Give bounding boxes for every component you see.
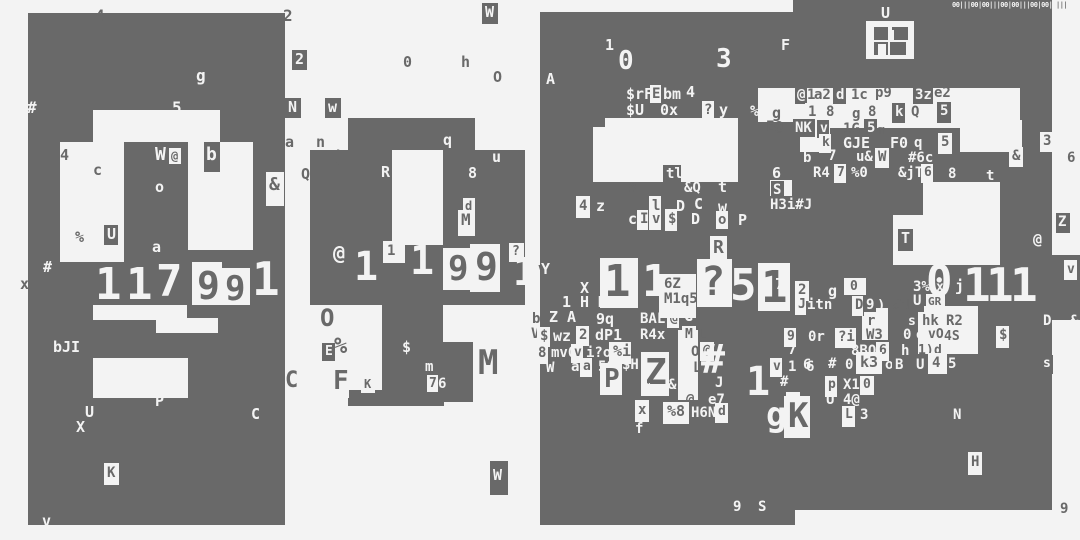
- glyph: R4x: [640, 328, 665, 342]
- glyph: F0: [890, 136, 908, 151]
- glyph: A: [546, 72, 555, 87]
- glyph: 5: [948, 357, 956, 371]
- glyph: C: [285, 370, 298, 392]
- block: [874, 27, 888, 40]
- glyph: W: [485, 5, 494, 20]
- glyph: 4: [60, 148, 69, 163]
- glyph: s: [628, 180, 637, 195]
- glyph: S: [773, 183, 781, 197]
- glyph: 4: [95, 8, 105, 24]
- glyph: %: [750, 104, 759, 119]
- glyph: #: [780, 375, 788, 389]
- glyph: W3: [866, 328, 883, 342]
- glyph: 1: [605, 38, 614, 53]
- glyph: Z A: [549, 310, 576, 325]
- glyph: 3z: [915, 88, 932, 102]
- glyph: NK: [795, 121, 812, 135]
- glyph: #: [828, 357, 836, 371]
- glyph: 1: [788, 360, 796, 374]
- glyph: 1c: [851, 88, 868, 102]
- glyph: I: [640, 212, 648, 226]
- glyph: bm: [663, 87, 681, 102]
- glyph: R: [381, 165, 390, 180]
- glyph: y: [719, 103, 728, 118]
- glyph: ): [877, 299, 885, 313]
- glyph: #:: [644, 382, 657, 393]
- glyph: 0: [403, 55, 412, 70]
- glyph: X: [76, 420, 85, 435]
- glyph: bJI: [53, 340, 80, 355]
- glyph: &: [1070, 314, 1078, 328]
- glyph: p: [828, 378, 836, 391]
- glyph: x: [20, 277, 29, 292]
- block: [888, 30, 894, 40]
- glyph: g: [196, 68, 206, 84]
- glyph: N: [288, 100, 297, 115]
- glyph: %: [334, 336, 347, 358]
- glyph: itn: [807, 298, 832, 312]
- glyph: Q: [911, 105, 919, 119]
- glyph: 0x: [660, 103, 678, 118]
- glyph: 9: [225, 272, 245, 306]
- glyph: L: [845, 408, 853, 421]
- glyph: 6: [1067, 151, 1075, 165]
- glyph: %8: [667, 404, 685, 419]
- glyph: 8: [538, 346, 546, 360]
- block: [443, 342, 473, 402]
- glyph: M: [478, 346, 498, 380]
- glyph: 3: [1043, 134, 1051, 148]
- block: [93, 110, 220, 142]
- glyph: 5: [941, 135, 949, 149]
- glyph: wz: [553, 329, 571, 344]
- glyph: k3: [860, 355, 878, 370]
- block: [188, 142, 253, 250]
- glyph: #: [701, 340, 725, 380]
- glyph: o: [155, 180, 164, 195]
- glyph: a: [285, 135, 294, 150]
- glyph: H: [971, 455, 979, 469]
- glyph: 7: [429, 377, 437, 390]
- glyph: u: [492, 150, 501, 165]
- glyph: q: [914, 136, 922, 150]
- glyph: j: [333, 150, 342, 165]
- glyph: 0: [845, 358, 853, 372]
- glyph: $H: [622, 358, 639, 372]
- glyph: 8: [468, 166, 477, 181]
- glyph: f: [635, 422, 643, 436]
- glyph: 0r: [808, 330, 825, 344]
- glyph: 2: [579, 328, 587, 342]
- glyph: k: [895, 105, 903, 119]
- glyph: 0: [863, 378, 871, 391]
- glyph: b: [206, 146, 217, 164]
- glyph: J: [798, 298, 806, 311]
- glyph: W: [878, 150, 886, 164]
- block: [923, 182, 958, 218]
- glyph: &: [1012, 149, 1020, 163]
- glyph: 4@: [843, 393, 860, 407]
- glyph: 5: [867, 121, 875, 135]
- glyph: 4: [686, 85, 695, 100]
- glyph: 1: [604, 260, 631, 304]
- glyph: 8: [948, 167, 956, 181]
- block: [593, 127, 605, 182]
- glyph: 9: [197, 267, 220, 305]
- glyph: g: [852, 107, 860, 121]
- glyph: 9: [866, 298, 874, 312]
- glyph: D: [676, 199, 685, 214]
- glyph: M: [685, 328, 693, 341]
- glyph: &: [668, 378, 676, 392]
- glyph: e2: [934, 86, 951, 100]
- glyph: $: [402, 340, 411, 355]
- glyph: P: [738, 213, 747, 228]
- glyph: 1: [410, 241, 434, 281]
- glyph: U: [85, 405, 94, 420]
- glyph: E: [652, 87, 660, 101]
- glyph: U: [881, 6, 890, 21]
- glyph: R4: [813, 166, 830, 180]
- glyph: d: [718, 405, 726, 418]
- glyph: K: [107, 466, 115, 480]
- block: [156, 318, 218, 333]
- glyph: 3: [716, 46, 732, 72]
- glyph: C: [251, 407, 260, 422]
- glyph: a2: [814, 88, 831, 102]
- glyph: @: [797, 88, 805, 102]
- glyph: 1: [387, 244, 395, 258]
- glyph: K: [788, 399, 808, 433]
- glyph: Z: [1058, 215, 1066, 229]
- block: [348, 118, 475, 150]
- glyph: Y: [541, 262, 550, 277]
- glyph: F: [781, 38, 790, 53]
- glyph: $: [999, 328, 1007, 342]
- glyph: F: [333, 368, 349, 394]
- glyph: b: [803, 151, 811, 165]
- glyph: 1: [126, 263, 153, 307]
- glyph: H3i#J: [770, 198, 812, 212]
- glyph: Q: [301, 167, 310, 182]
- glyph: %0: [851, 166, 868, 180]
- block: [878, 44, 886, 55]
- glyph: 9: [448, 252, 468, 286]
- glyph: W: [546, 361, 554, 375]
- glyph: $U: [626, 103, 644, 118]
- glyph: c: [93, 163, 102, 178]
- glyph: $: [540, 329, 548, 343]
- glyph: D: [1043, 314, 1051, 328]
- glyph: 4: [579, 199, 587, 213]
- glyph: o: [916, 328, 924, 342]
- glyph: t: [718, 180, 727, 195]
- glyph: t: [986, 169, 994, 183]
- glyph: 1: [513, 253, 536, 291]
- glyph: 3: [860, 408, 868, 422]
- glyph: U: [913, 294, 921, 308]
- glyph: 2: [295, 52, 304, 67]
- glyph: P: [604, 366, 620, 392]
- glyph: 0: [850, 280, 858, 293]
- glyph: %: [75, 230, 84, 245]
- glyph: O: [493, 70, 502, 85]
- glyph: @: [171, 150, 178, 162]
- glyph: m: [425, 360, 433, 374]
- glyph: hk: [922, 314, 939, 328]
- block: [310, 150, 392, 245]
- glyph: 6: [772, 166, 781, 181]
- glyph: 1: [95, 263, 122, 307]
- glyph: a: [152, 240, 161, 255]
- glyph: #N: [893, 298, 910, 312]
- glyph: 7: [828, 149, 836, 163]
- glyph: g: [828, 284, 837, 299]
- glyph: 7: [837, 166, 845, 179]
- glitch-art-canvas: 42g5#W20hONw4cW@bo&anjQ%Ua#x117991bJIPUX…: [0, 0, 1080, 540]
- glyph: 00|||00|00|||00|00|||00|00||0: [952, 2, 1060, 9]
- glyph: s: [1043, 357, 1051, 370]
- glyph: v: [42, 514, 51, 529]
- glyph: O: [691, 345, 699, 359]
- glyph: v: [773, 360, 781, 373]
- glyph: a: [571, 360, 579, 374]
- block: [955, 182, 1000, 265]
- glyph: #: [27, 100, 37, 116]
- glyph: z: [596, 199, 605, 214]
- glyph: T: [901, 231, 910, 246]
- glyph: M: [461, 212, 471, 228]
- block: [890, 42, 906, 55]
- glyph: #: [43, 260, 52, 275]
- glyph: 1: [354, 247, 378, 287]
- glyph: n: [316, 135, 325, 150]
- glyph: M1q5: [664, 292, 698, 306]
- glyph: 8: [826, 105, 834, 119]
- glyph: @: [333, 243, 345, 263]
- glyph: U: [826, 393, 834, 407]
- glyph: 6Z: [664, 277, 681, 291]
- glyph: 9: [1060, 502, 1068, 516]
- glyph: 5: [940, 104, 948, 118]
- glyph: 6: [924, 166, 932, 179]
- glyph: h: [461, 55, 470, 70]
- glyph: 5: [172, 100, 182, 116]
- glyph: E: [325, 345, 333, 358]
- glyph: 1: [808, 105, 816, 119]
- glyph: dP1: [595, 328, 622, 343]
- glyph: ?: [701, 262, 725, 302]
- glyph: r: [867, 314, 875, 328]
- glyph: w: [328, 100, 337, 115]
- glyph: ?: [704, 103, 712, 117]
- glyph: 4: [932, 356, 940, 370]
- glyph: q: [443, 133, 452, 148]
- glyph: 1: [1010, 262, 1038, 308]
- glyph: tl: [666, 167, 683, 181]
- glyph: S: [758, 500, 766, 514]
- glyph: B: [895, 358, 903, 372]
- glyph: u&: [856, 150, 873, 164]
- glyph: 2: [283, 8, 293, 24]
- glyph: &Q: [684, 181, 701, 195]
- glyph: v: [652, 212, 660, 226]
- glyph: x: [638, 403, 646, 417]
- glyph: vO: [928, 328, 944, 341]
- block: [93, 358, 188, 398]
- glyph: U: [107, 227, 116, 242]
- glyph: 7: [775, 277, 784, 292]
- glyph: 9: [733, 500, 741, 514]
- glyph: 4S: [944, 330, 960, 343]
- glyph: 6: [438, 377, 446, 391]
- glyph: #6c: [908, 151, 933, 165]
- glyph: n: [643, 167, 652, 182]
- block: [443, 150, 525, 245]
- glyph: d: [836, 88, 844, 102]
- glyph: 0: [618, 48, 634, 74]
- glyph: p9: [875, 86, 892, 100]
- glyph: W: [155, 146, 166, 164]
- glyph: c: [628, 212, 637, 227]
- block: [892, 27, 908, 40]
- glyph: P: [155, 394, 164, 409]
- glyph: R: [713, 239, 724, 257]
- glyph: D: [691, 212, 700, 227]
- glyph: o: [718, 213, 726, 227]
- glyph: 8: [868, 105, 876, 119]
- glyph: |||: [1056, 2, 1067, 9]
- glyph: N: [953, 408, 961, 422]
- glyph: W: [493, 468, 502, 483]
- glyph: b: [532, 312, 540, 326]
- glyph: ?i: [838, 330, 855, 344]
- glyph: $: [668, 212, 676, 226]
- glyph: U: [916, 358, 924, 372]
- glyph: v: [1067, 263, 1075, 276]
- glyph: O: [320, 306, 334, 330]
- glyph: 2: [798, 283, 806, 297]
- glyph: 7: [788, 343, 796, 357]
- glyph: R2: [946, 314, 963, 328]
- glyph: a: [583, 360, 591, 373]
- glyph: 1: [252, 256, 280, 302]
- glyph: 5: [730, 264, 757, 308]
- glyph: X1: [843, 378, 860, 392]
- block: [795, 510, 811, 525]
- glyph: 0: [903, 328, 911, 342]
- glyph: 6: [803, 358, 811, 372]
- glyph: 9q: [596, 312, 614, 327]
- glyph: @: [1033, 232, 1042, 247]
- glyph: H6N: [691, 406, 716, 420]
- glyph: K: [364, 378, 371, 390]
- glyph: E@: [766, 120, 783, 134]
- glyph: 7: [156, 260, 183, 304]
- glyph: 9: [475, 248, 498, 286]
- glyph: &: [269, 176, 280, 194]
- glyph: m: [878, 124, 885, 136]
- glyph: 0: [926, 260, 953, 304]
